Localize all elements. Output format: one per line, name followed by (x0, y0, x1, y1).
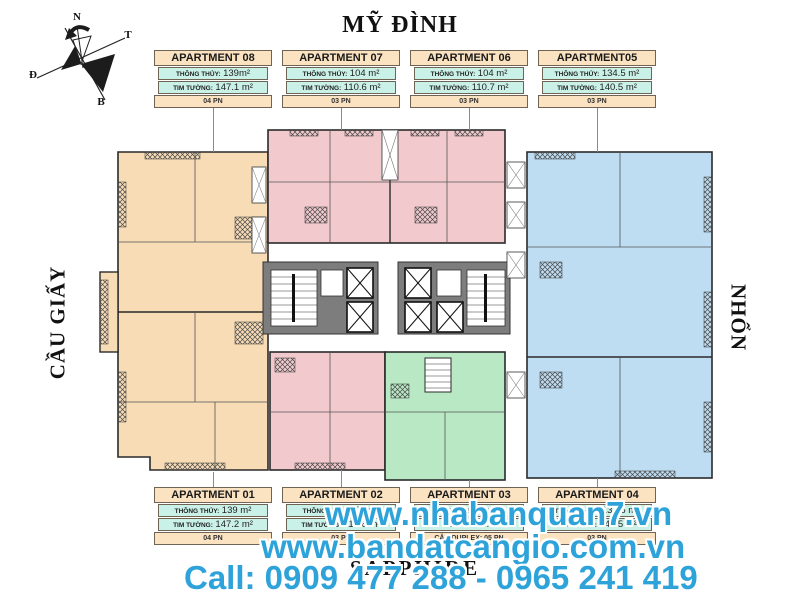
apartment-03-block (385, 352, 505, 480)
bedroom-count: 03 PN (410, 95, 528, 108)
apartment-08-card: APARTMENT 08 THÔNG THỦY: 139m² TIM TƯỜNG… (154, 50, 272, 108)
area-label-east: NHỔN (726, 248, 751, 388)
compass-letter-b: B (97, 96, 105, 106)
bedroom-count: 03 PN (538, 95, 656, 108)
apartment-08-01-wing (100, 152, 268, 470)
clear-area-value: 104 m² (350, 68, 380, 79)
connector-line (597, 478, 598, 487)
clear-area-value: 139 m² (222, 505, 252, 516)
watermark-phone: Call: 0909 477 288 - 0965 241 419 (184, 561, 698, 594)
apartment-05-04-wing (527, 152, 712, 478)
gross-area-value: 140.5 m² (599, 82, 637, 93)
right-core (398, 262, 510, 334)
floor-plan-drawing (95, 122, 715, 482)
apartment-02-block (270, 352, 385, 470)
compass-letter-n: N (73, 11, 81, 23)
apartment-card-title: APARTMENT 06 (410, 50, 528, 66)
apartment-05-card: APARTMENT05 THÔNG THỦY: 134.5 m² TIM TƯỜ… (538, 50, 656, 108)
clear-area-value: 139m² (223, 68, 250, 79)
apartment-card-title: APARTMENT 08 (154, 50, 272, 66)
connector-line (213, 472, 214, 487)
watermark-website-1: www.nhabanquan7.vn (325, 497, 672, 530)
compass-rose: N T Đ B (25, 6, 135, 106)
compass-letter-t: T (124, 29, 132, 41)
clear-area-label: THÔNG THỦY: (431, 71, 476, 78)
apartment-06-card: APARTMENT 06 THÔNG THỦY: 104 m² TIM TƯỜN… (410, 50, 528, 108)
top-apartment-cards: APARTMENT 08 THÔNG THỦY: 139m² TIM TƯỜNG… (154, 50, 656, 108)
apartment-card-title: APARTMENT 07 (282, 50, 400, 66)
area-label-west: CẦU GIẤY (46, 243, 71, 403)
left-core (263, 262, 378, 334)
bedroom-count: 04 PN (154, 95, 272, 108)
connector-line (213, 108, 214, 152)
apartment-07-card: APARTMENT 07 THÔNG THỦY: 104 m² TIM TƯỜN… (282, 50, 400, 108)
apartment-card-title: APARTMENT 01 (154, 487, 272, 503)
connector-line (341, 108, 342, 130)
clear-area-value: 134.5 m² (602, 68, 640, 79)
gross-area-value: 110.6 m² (344, 82, 381, 93)
clear-area-value: 104 m² (478, 68, 508, 79)
connector-line (469, 480, 470, 487)
gross-area-value: 147.2 m² (215, 519, 253, 530)
connector-line (341, 470, 342, 487)
clear-area-label: THÔNG THỦY: (176, 71, 221, 78)
apartment-card-title: APARTMENT05 (538, 50, 656, 66)
gross-area-label: TIM TƯỜNG: (173, 85, 213, 92)
gross-area-label: TIM TƯỜNG: (301, 85, 341, 92)
connector-line (597, 108, 598, 152)
gross-area-label: TIM TƯỜNG: (173, 522, 213, 529)
bedroom-count: 04 PN (154, 532, 272, 545)
clear-area-label: THÔNG THỦY: (303, 71, 348, 78)
apartment-01-card: APARTMENT 01 THÔNG THỦY: 139 m² TIM TƯỜN… (154, 487, 272, 545)
clear-area-label: THÔNG THỦY: (175, 508, 220, 515)
apartment-07-06-block (268, 130, 505, 243)
bedroom-count: 03 PN (282, 95, 400, 108)
gross-area-value: 110.7 m² (472, 82, 509, 93)
floor-plan-page: N T Đ B MỸ ĐÌNH CẦU GIẤY NHỔN SAPPHIRE (0, 0, 800, 600)
connector-line (469, 108, 470, 130)
gross-area-label: TIM TƯỜNG: (429, 85, 469, 92)
clear-area-label: THÔNG THỦY: (555, 71, 600, 78)
gross-area-value: 147.1 m² (215, 82, 253, 93)
gross-area-label: TIM TƯỜNG: (557, 85, 597, 92)
compass-letter-d: Đ (29, 69, 37, 81)
